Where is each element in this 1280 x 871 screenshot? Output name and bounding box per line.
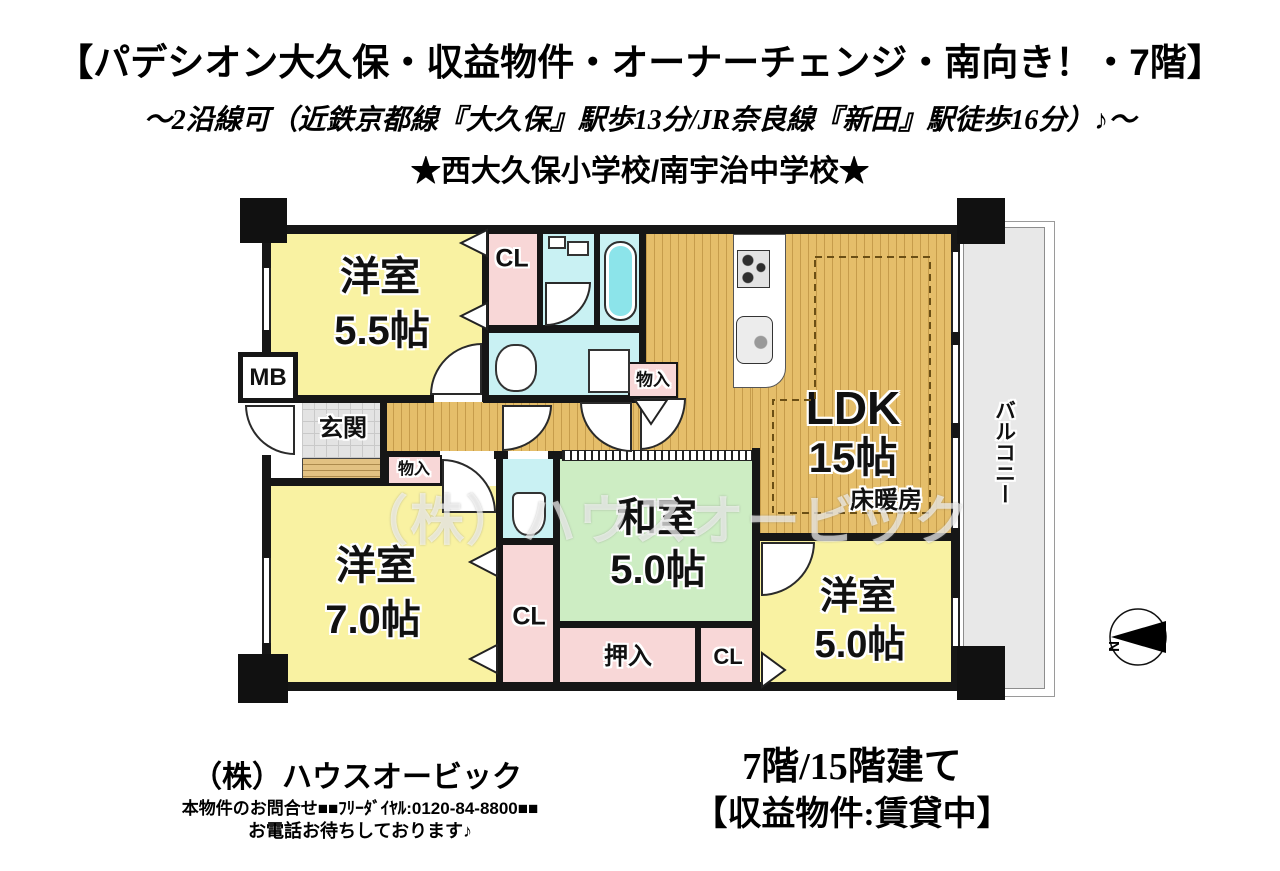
compass-n-label: N	[1105, 641, 1122, 652]
powder-faucet	[567, 241, 589, 256]
mb-label: MB	[249, 366, 286, 390]
entrance-door-arc	[245, 405, 295, 455]
yoshitsu50-size: 5.0帖	[815, 626, 906, 664]
window-y50	[951, 598, 960, 646]
wall-toilet-right	[553, 455, 560, 685]
bathtub	[604, 241, 637, 321]
genkan-label: 玄関	[319, 417, 367, 441]
wall-washitsu-right	[752, 448, 760, 685]
window-ldk-1	[951, 252, 960, 332]
yoshitsu50-name: 洋室	[820, 578, 896, 616]
washitsu-size: 5.0帖	[610, 550, 706, 590]
pillar-top-left	[240, 198, 287, 243]
washing-machine	[588, 349, 630, 393]
pillar-bottom-right	[957, 646, 1005, 700]
balcony-label: バルコニー	[994, 400, 1015, 505]
compass: N	[1105, 609, 1166, 665]
footer-contact: 本物件のお問合せ■■ﾌﾘｰﾀﾞｲﾔﾙ:0120-84-8800■■	[182, 794, 539, 819]
wall-washitsu-oshiire	[553, 621, 759, 628]
kitchen-stove	[737, 250, 770, 288]
wall-oshiire-cl	[695, 628, 701, 685]
page-subtitle: ～2沿線可（近鉄京都線『大久保』駅歩13分/JR奈良線『新田』駅徒歩16分）♪～	[144, 98, 1136, 138]
page-title: 【パデシオン大久保・収益物件・オーナーチェンジ・南向き！・7階】	[56, 32, 1224, 86]
ldk-note: 床暖房	[850, 489, 922, 513]
footer-contact2: お電話お待ちしております♪	[248, 817, 472, 843]
closet-top-label: CL	[495, 247, 528, 272]
oshiire-label: 押入	[604, 645, 652, 669]
powder-sink	[548, 236, 566, 249]
wall-ldk-y50	[752, 533, 959, 541]
compass-needle	[1111, 621, 1166, 653]
closet-mid-label: CL	[512, 605, 545, 630]
footer-status: 【収益物件:賃貸中】	[693, 786, 1010, 835]
wall-bottom	[262, 682, 960, 691]
washitsu-name: 和室	[617, 498, 697, 538]
pillar-top-right	[957, 198, 1005, 244]
yoshitsu70-door-arc	[442, 459, 496, 513]
window-ldk-3	[951, 438, 960, 528]
wall-genkan-right	[380, 403, 387, 485]
yoshitsu70-name: 洋室	[336, 546, 416, 586]
window-y55	[262, 268, 271, 330]
wall-toilet-left	[496, 455, 503, 685]
window-y70	[262, 558, 271, 643]
toilet-fixture	[512, 492, 546, 536]
ldk-name: LDK	[806, 385, 901, 431]
yoshitsu55-name: 洋室	[340, 257, 420, 297]
washitsu-sliding-door	[562, 450, 752, 461]
pillar-bottom-left	[238, 654, 288, 703]
wall-toilet-cl	[496, 538, 560, 545]
yoshitsu55-size: 5.5帖	[334, 311, 430, 351]
window-ldk-2	[951, 345, 960, 423]
wall-wet-bottom	[482, 325, 645, 333]
wall-top	[262, 225, 960, 234]
wall-cl-powder	[537, 232, 543, 327]
page-schools: ★西大久保小学校/南宇治中学校★	[411, 146, 869, 190]
ldk-size: 15帖	[809, 437, 898, 479]
kitchen-sink	[736, 316, 773, 364]
yoshitsu70-size: 7.0帖	[325, 600, 421, 640]
monoiri-mid-label: 物入	[636, 372, 670, 389]
footer-company: （株）ハウスオービック	[192, 752, 522, 796]
floorplan-flyer: 【パデシオン大久保・収益物件・オーナーチェンジ・南向き！・7階】 ～2沿線可（近…	[0, 0, 1280, 871]
laundry-basin	[495, 344, 537, 392]
closet-bottom-label: CL	[713, 646, 742, 668]
monoiri-hall-label: 物入	[398, 462, 430, 478]
wall-powder-bath	[594, 232, 600, 328]
footer-floor-info: 7階/15階建て	[742, 735, 962, 790]
wall-y55-right	[482, 232, 489, 402]
